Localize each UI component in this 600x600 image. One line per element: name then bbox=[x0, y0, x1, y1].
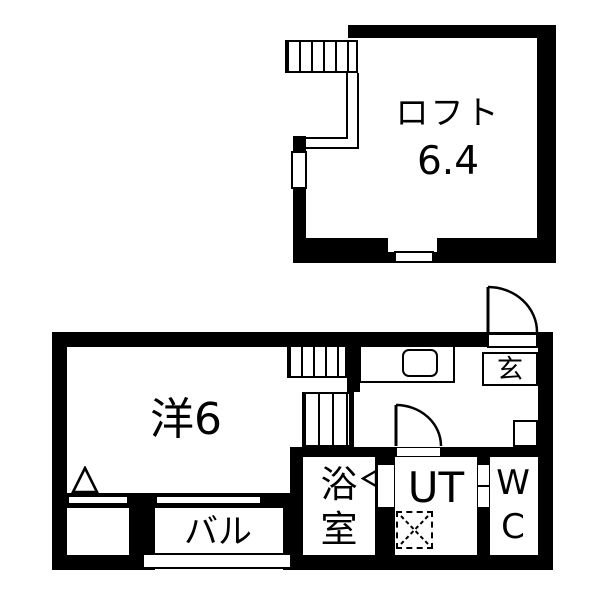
loft-floor-notch bbox=[388, 238, 437, 252]
stair-wall-block bbox=[347, 332, 360, 392]
bath-door-opening bbox=[377, 464, 395, 508]
f1-left-wall bbox=[52, 332, 67, 570]
ut-door-swing-icon bbox=[394, 403, 443, 447]
balcony-outer-strip bbox=[142, 553, 292, 569]
entrance-door-opening bbox=[487, 333, 538, 348]
entrance-area-box: 玄 bbox=[482, 352, 538, 386]
ut-wc-door-midline bbox=[478, 485, 489, 487]
wc-label: WC bbox=[492, 461, 534, 549]
loft-size-label: 6.4 bbox=[350, 141, 546, 183]
loft-top-wall bbox=[348, 25, 556, 38]
staircase-lower-flight bbox=[302, 392, 354, 447]
floor-plan-canvas: ロフト 6.4 玄 bbox=[0, 0, 600, 600]
bath-door-arrow-icon bbox=[361, 469, 378, 488]
utility-label: UT bbox=[394, 466, 478, 510]
loft-left-window bbox=[291, 151, 307, 189]
room-label: 洋6 bbox=[111, 396, 261, 444]
channel-line-left bbox=[346, 73, 348, 139]
loft-stairs bbox=[285, 40, 358, 73]
entrance-label: 玄 bbox=[484, 355, 536, 385]
entrance-door-swing-icon bbox=[486, 285, 539, 333]
bath-label: 浴室 bbox=[319, 462, 359, 552]
closet-window-opening bbox=[67, 495, 129, 505]
staircase-upper-flight bbox=[287, 345, 347, 378]
balcony-label: バル bbox=[163, 513, 273, 551]
landing-line-top bbox=[306, 137, 348, 139]
wall-fixture-box bbox=[513, 420, 538, 447]
washing-machine-pan-cross-icon bbox=[398, 513, 431, 547]
loft-bottom-window bbox=[394, 251, 434, 263]
balcony-sliding-window bbox=[155, 495, 262, 505]
f1-bottom-wall-right bbox=[292, 555, 553, 570]
kitchen-sink-icon bbox=[402, 349, 438, 377]
loft-name-label: ロフト bbox=[350, 95, 546, 131]
ut-door-opening bbox=[396, 447, 441, 457]
triangle-marker-icon bbox=[71, 466, 99, 494]
